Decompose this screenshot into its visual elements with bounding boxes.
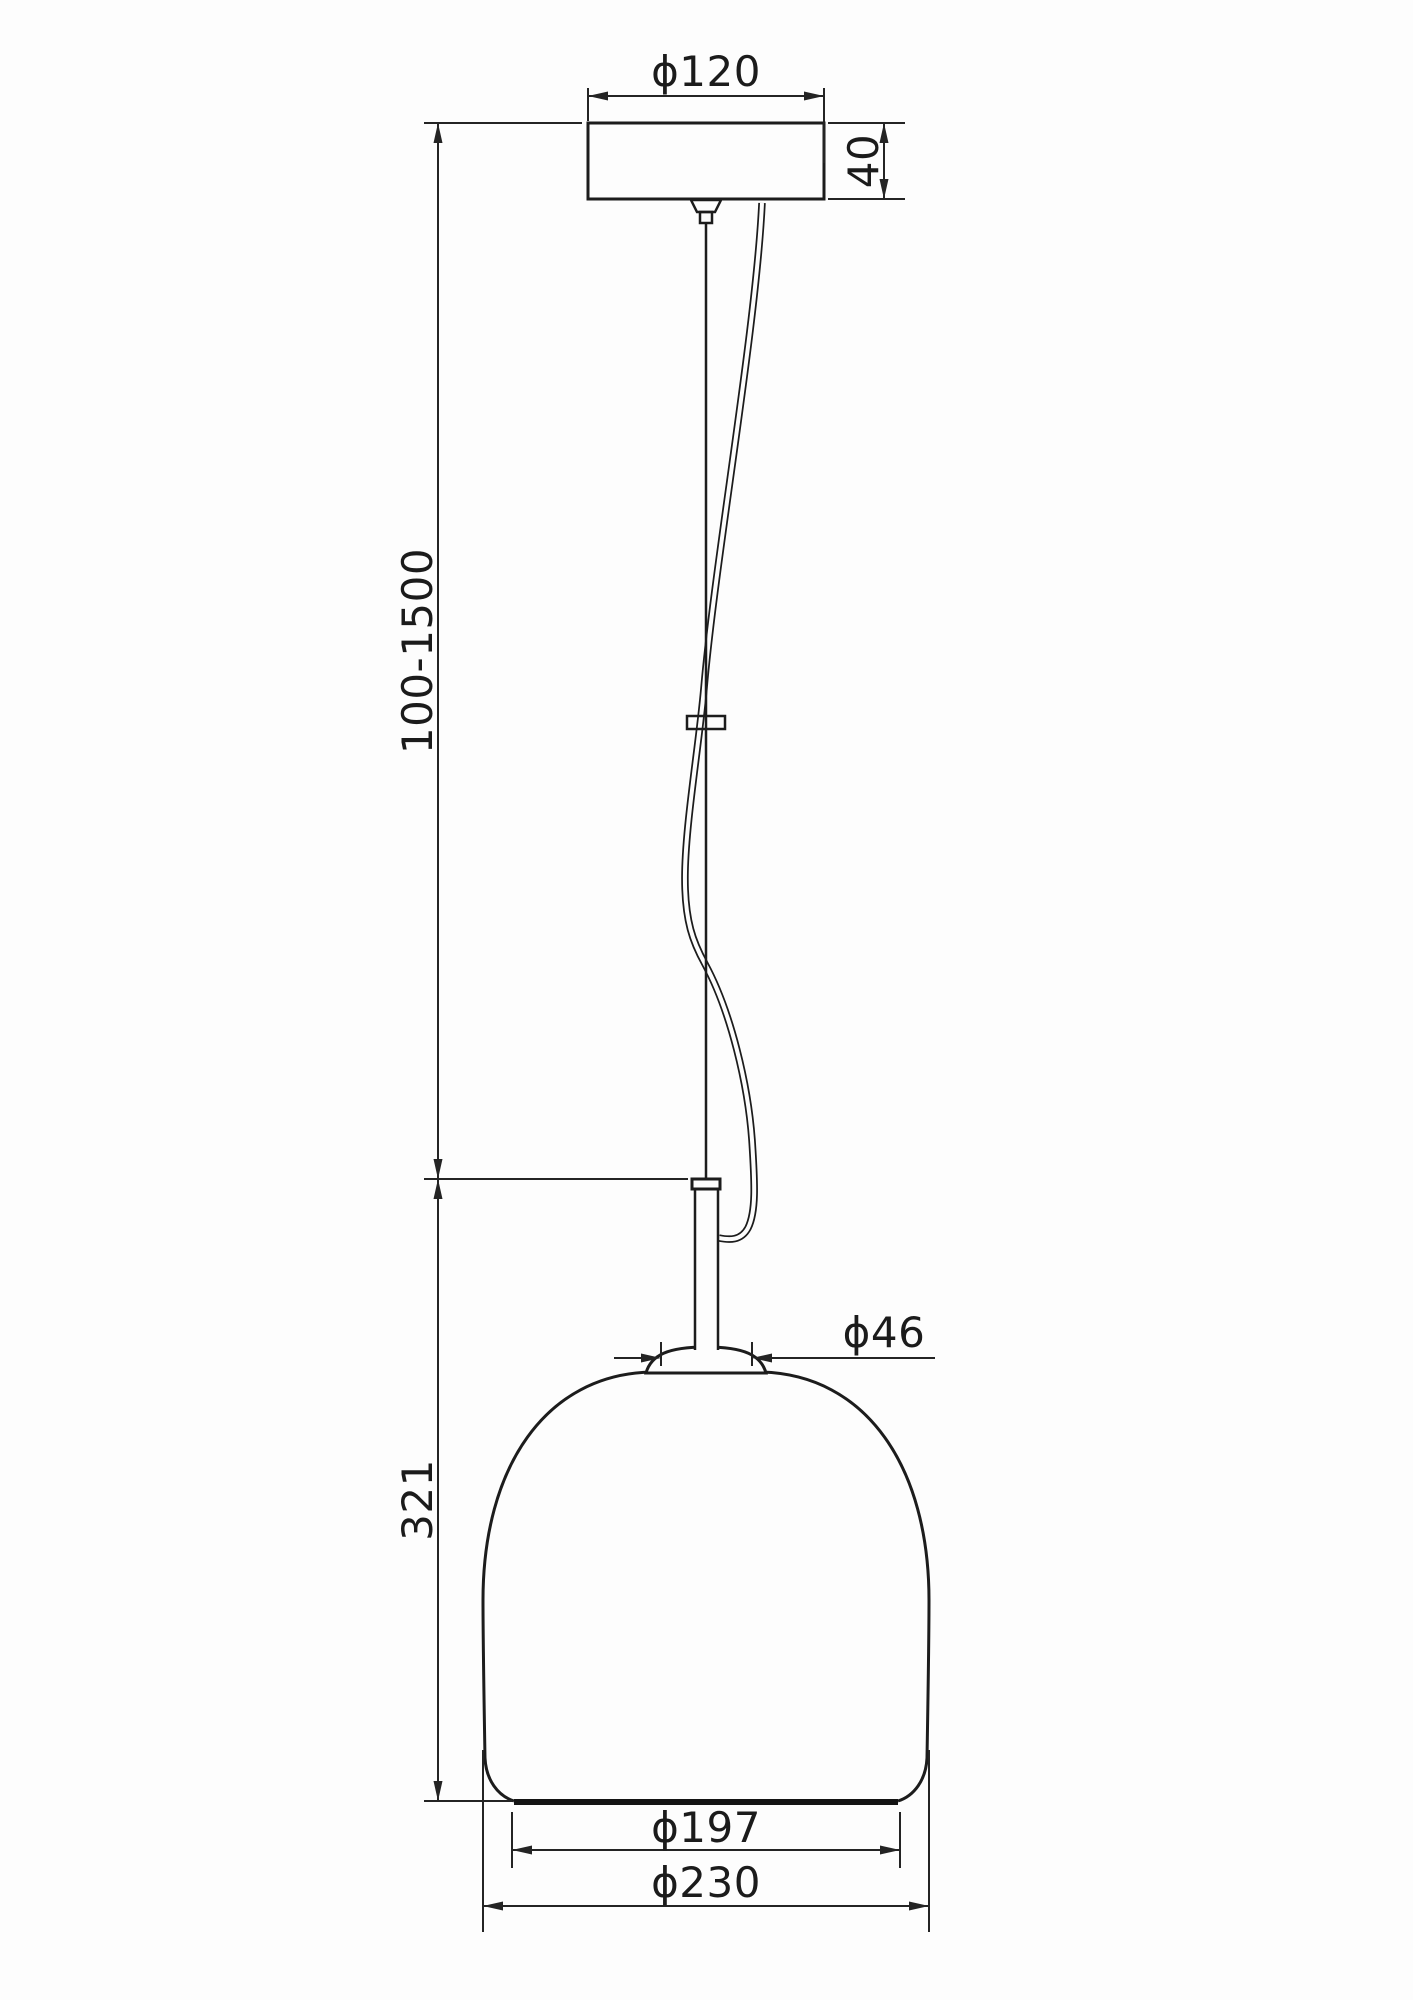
ceiling-canopy xyxy=(588,123,824,199)
arrowhead-left xyxy=(512,1846,532,1855)
label-shade-outer-diameter: ϕ230 xyxy=(651,1858,761,1907)
shade-outline xyxy=(483,1372,929,1801)
arrowhead-left xyxy=(588,92,608,101)
dim-canopy-height: 40 xyxy=(828,123,905,199)
arrowhead-top xyxy=(434,1179,443,1199)
label-shade-opening-diameter: ϕ197 xyxy=(651,1803,761,1852)
stem-cap xyxy=(692,1179,720,1189)
power-cord xyxy=(685,203,762,1239)
pendant-lamp-dimension-drawing: ϕ120 40 100-1500 321 xyxy=(0,0,1413,2000)
drawing-sheet: ϕ120 40 100-1500 321 xyxy=(0,0,1413,2000)
cable-gland-nut xyxy=(700,212,712,223)
power-cord-core xyxy=(685,203,762,1239)
arrowhead-right xyxy=(804,92,824,101)
arrowhead-bottom xyxy=(434,1159,443,1179)
arrowhead-right xyxy=(909,1902,929,1911)
cable-gland xyxy=(691,200,721,212)
label-canopy-diameter: ϕ120 xyxy=(651,47,761,96)
power-cord-outline xyxy=(685,203,762,1239)
arrowhead-right xyxy=(880,1846,900,1855)
label-shade-height: 321 xyxy=(393,1459,442,1541)
stem-tube-fill xyxy=(696,1186,717,1350)
dim-suspension-length: 100-1500 xyxy=(393,123,688,1179)
arrowhead-bottom xyxy=(434,1781,443,1801)
arrowhead-top xyxy=(434,123,443,143)
glass-neck-dome xyxy=(646,1347,766,1373)
label-canopy-height: 40 xyxy=(839,134,888,188)
label-neck-diameter: ϕ46 xyxy=(843,1308,926,1357)
arrowhead-left xyxy=(483,1902,503,1911)
label-suspension-length: 100-1500 xyxy=(393,548,442,754)
